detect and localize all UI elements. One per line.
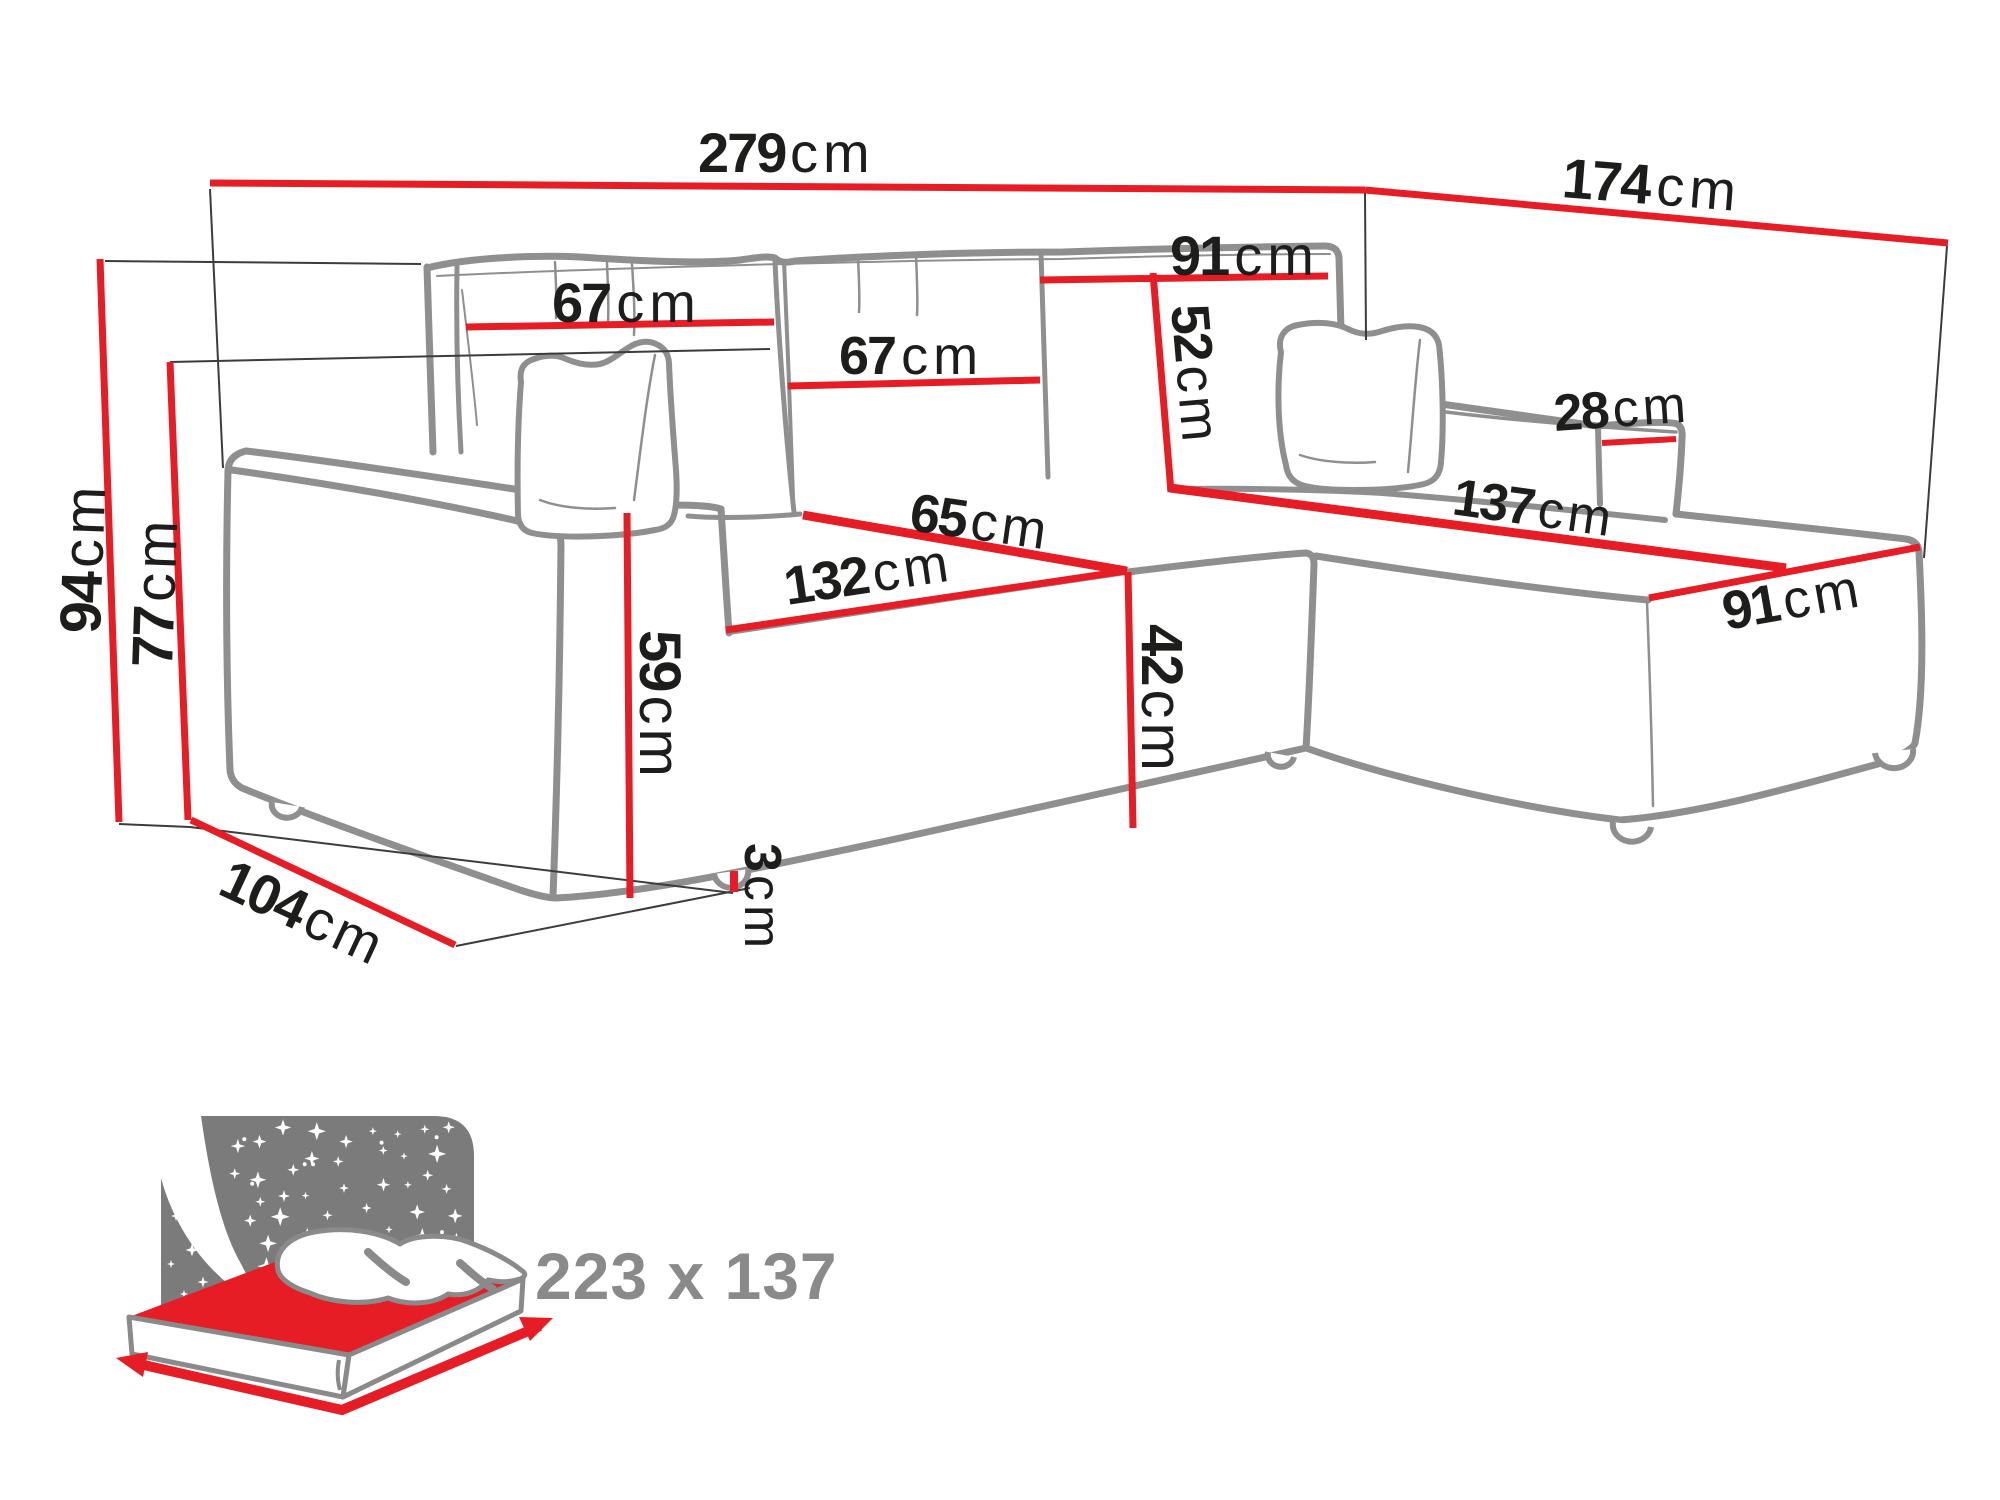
svg-text:59cm: 59cm xyxy=(627,630,692,781)
svg-text:cm: cm xyxy=(790,121,875,184)
svg-text:3cm: 3cm xyxy=(733,843,791,952)
svg-text:94cm: 94cm xyxy=(48,481,118,634)
svg-text:91cm: 91cm xyxy=(1170,224,1319,287)
svg-text:67cm: 67cm xyxy=(839,326,983,386)
svg-text:42cm: 42cm xyxy=(1129,624,1194,775)
svg-text:28cm: 28cm xyxy=(1552,376,1692,443)
svg-text:77cm: 77cm xyxy=(120,515,190,668)
svg-text:223 x 137: 223 x 137 xyxy=(535,1239,838,1313)
svg-text:52cm: 52cm xyxy=(1159,302,1231,448)
svg-text:279: 279 xyxy=(698,121,786,184)
svg-text:67cm: 67cm xyxy=(552,271,701,334)
